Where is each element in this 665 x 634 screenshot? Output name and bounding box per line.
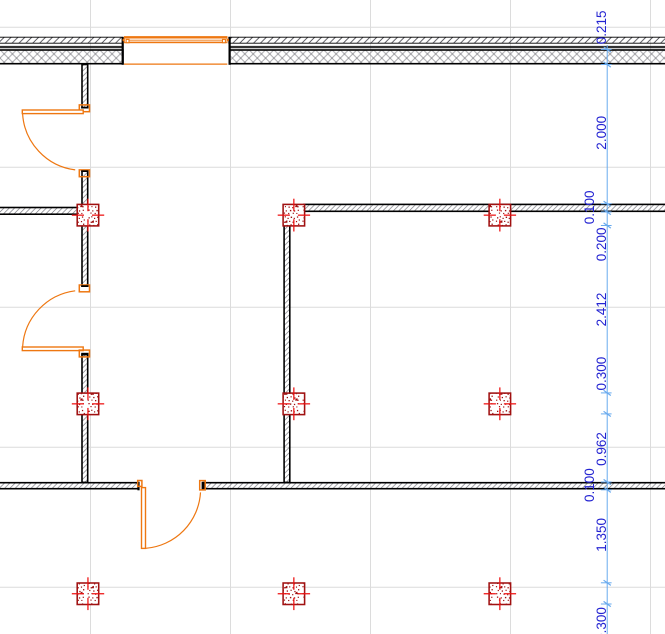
- svg-text:0.100: 0.100: [582, 468, 597, 502]
- svg-text:0.200: 0.200: [594, 228, 609, 262]
- svg-text:2.412: 2.412: [594, 293, 609, 327]
- svg-text:0.300: 0.300: [594, 357, 609, 391]
- svg-text:0.100: 0.100: [582, 191, 597, 225]
- svg-text:0.300: 0.300: [594, 607, 609, 634]
- svg-text:0.215: 0.215: [594, 11, 609, 45]
- svg-text:2.000: 2.000: [594, 116, 609, 150]
- svg-text:1.350: 1.350: [594, 518, 609, 552]
- svg-text:0.962: 0.962: [594, 432, 609, 466]
